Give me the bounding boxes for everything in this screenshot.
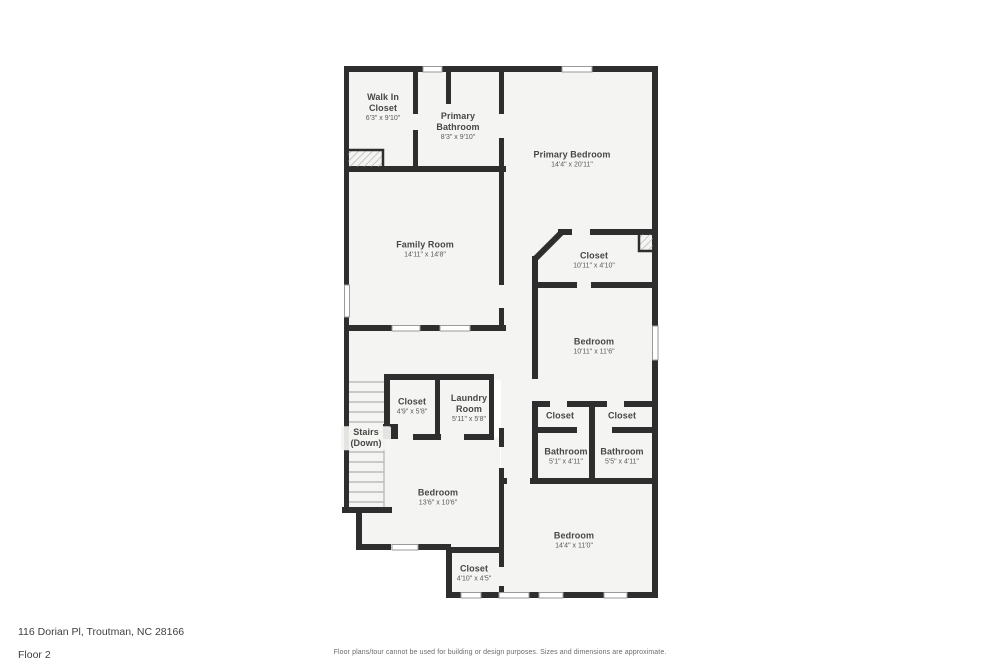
floor-number-text: Floor 2 (18, 649, 51, 661)
floor-plan-page: Walk In Closet 6'3" x 9'10" Primary Bath… (0, 0, 1000, 667)
address-text: 116 Dorian Pl, Troutman, NC 28166 (18, 626, 184, 638)
floor-plan-drawing (0, 0, 1000, 667)
hatch-shaft-ne (639, 233, 654, 251)
hatch-shaft-nw (347, 150, 383, 168)
disclaimer-text: Floor plans/tour cannot be used for buil… (334, 649, 667, 656)
